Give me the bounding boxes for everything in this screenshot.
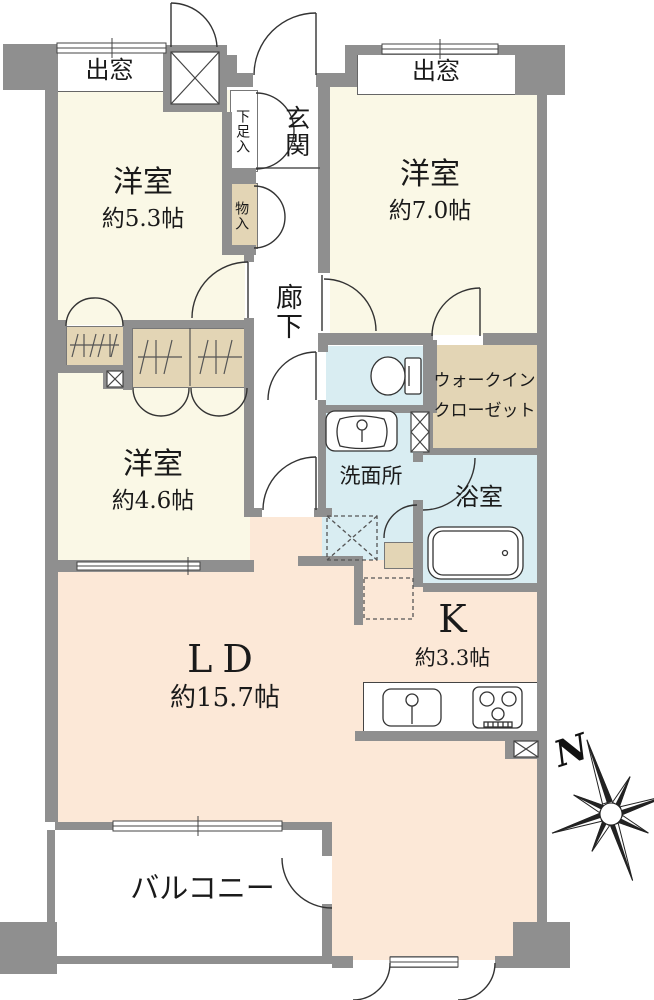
hallway-label: 廊下 <box>271 277 302 347</box>
compass-north-label: N <box>548 725 595 776</box>
bay-window-right-label: 出窓 <box>357 58 515 86</box>
bedroom46-size: 約4.6帖 <box>58 488 248 514</box>
bedroom53-name: 洋室 <box>55 166 231 201</box>
bathroom-label: 浴室 <box>423 484 535 512</box>
bay-window-left-label: 出窓 <box>54 57 165 85</box>
bedroom53-size: 約5.3帖 <box>55 206 231 232</box>
bathtub-icon <box>428 527 523 579</box>
washroom-label: 洗面所 <box>322 464 420 488</box>
toilet-icon <box>371 357 421 395</box>
living-dining-name: LD <box>130 638 320 682</box>
walk-in-closet-label-1: ウォークイン <box>431 372 538 392</box>
bedroom46-name: 洋室 <box>58 448 248 483</box>
kitchen-name: K <box>400 598 505 642</box>
entrance-label: 玄関 <box>281 95 310 169</box>
living-dining-size: 約15.7帖 <box>130 684 320 714</box>
closet-hatch <box>70 328 242 386</box>
washing-machine-pan <box>327 516 377 560</box>
walk-in-closet-label-2: クローゼット <box>431 402 538 422</box>
shoe-cabinet-label: 下足入 <box>234 97 250 165</box>
bedroom70-name: 洋室 <box>330 158 530 193</box>
kitchen-sink-icon <box>383 689 441 726</box>
kitchen-size: 約3.3帖 <box>400 646 505 670</box>
washbasin-icon <box>326 411 397 451</box>
floor-plan: N 出窓 出窓 洋室 約5.3帖 洋室 約7.0帖 洋室 約4.6帖 玄関 下足… <box>0 0 654 1000</box>
storage-label: 物入 <box>233 192 249 240</box>
balcony-label: バルコニー <box>90 872 315 905</box>
stove-icon <box>473 687 522 728</box>
bedroom70-size: 約7.0帖 <box>330 198 530 224</box>
compass-icon <box>528 721 654 900</box>
